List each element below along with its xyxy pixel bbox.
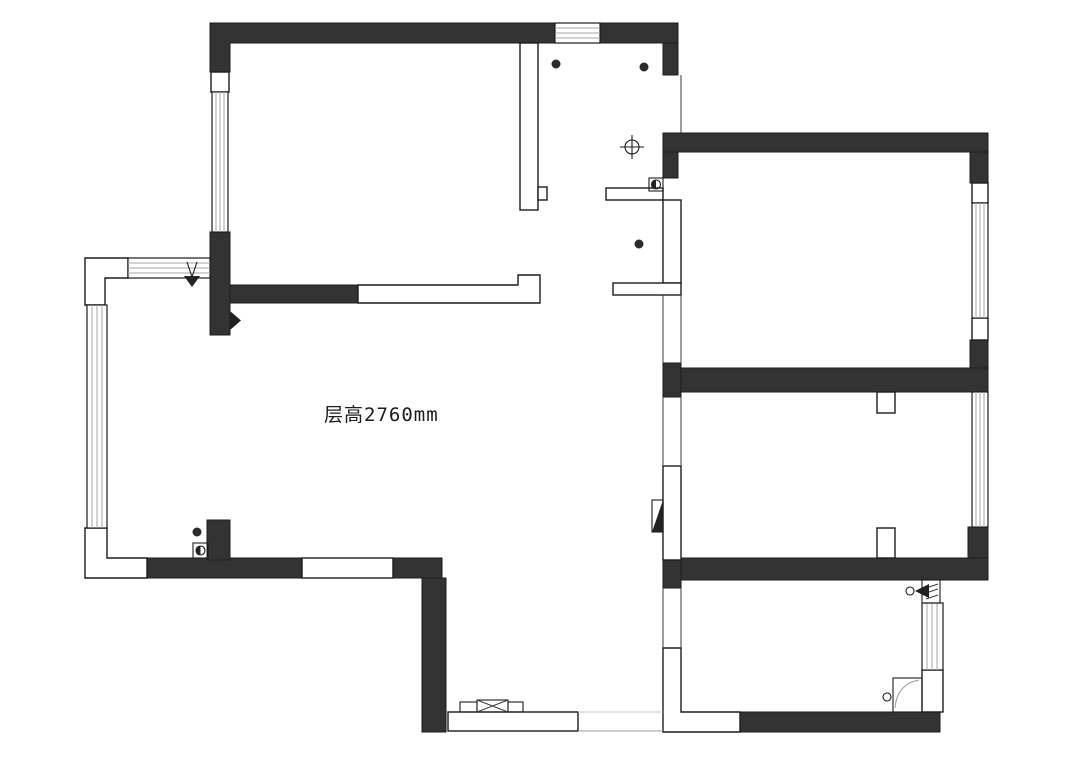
wall-topleft-room-south xyxy=(230,285,358,303)
window-north xyxy=(555,23,600,43)
wall-hall-right-upper xyxy=(663,43,678,75)
window-entry-north xyxy=(128,258,210,278)
opening-topleft-room-south xyxy=(358,275,540,303)
wall-midright-tee-block xyxy=(663,363,681,397)
pilaster-west-bottom xyxy=(85,528,147,578)
wall-topleft-room-west-lower xyxy=(210,232,230,335)
point-marker-dot xyxy=(193,528,202,537)
window-living-west xyxy=(87,305,107,528)
window-endcap-east-upper xyxy=(972,183,988,203)
wall-living-south-corner xyxy=(393,558,442,578)
wall-north xyxy=(210,23,678,72)
floor-plan-svg: 层高2760mm xyxy=(0,0,1080,763)
niche-right-bar xyxy=(663,200,681,283)
window-midright-east xyxy=(972,392,988,527)
niche-bottom-bar xyxy=(613,283,681,295)
cabinet-swing-icon xyxy=(883,678,922,712)
wall-topright-room-north xyxy=(663,133,988,152)
point-marker-dot xyxy=(640,63,649,72)
wall-living-south-stub xyxy=(207,520,230,560)
pilaster-west-top xyxy=(85,258,128,305)
wall-fixture-arrow-icon xyxy=(906,580,940,603)
jamb-midright-north xyxy=(877,392,895,413)
door-swing-triangle-left-icon xyxy=(652,500,663,532)
wall-topright-room-east-upper xyxy=(970,152,988,183)
light-fixture-crosshair-icon xyxy=(620,135,644,159)
window-bottomright-east xyxy=(922,603,943,670)
window-endcap-east-mid xyxy=(972,318,988,340)
wall-living-south-black xyxy=(145,558,302,578)
jamb-midright-south xyxy=(877,528,895,558)
window-topleft-west xyxy=(212,92,228,232)
point-marker-dot xyxy=(552,60,561,69)
opening-living-south xyxy=(302,558,393,578)
floor-plan-canvas: 层高2760mm xyxy=(0,0,1080,763)
window-endcap-topleft xyxy=(211,72,229,92)
junction-box-half-circle-icon xyxy=(193,543,208,558)
wall-midright-room-north xyxy=(663,368,988,392)
flue-vent-box-icon xyxy=(460,700,523,712)
threshold-bottom-center xyxy=(448,712,578,731)
floor-height-label: 层高2760mm xyxy=(324,404,439,426)
wall-bottomright-west-block xyxy=(663,558,681,588)
door-leaf-midright xyxy=(663,466,681,560)
walls xyxy=(145,23,988,732)
window-endcap-bottomright xyxy=(922,670,943,712)
pier-bottom-center xyxy=(663,648,740,732)
wall-living-east-vertical xyxy=(422,578,446,732)
niche-top-bar xyxy=(606,188,663,200)
wall-midright-room-south xyxy=(663,558,988,580)
point-marker-dot xyxy=(635,240,644,249)
partition-kitchen-foot xyxy=(538,187,547,200)
wall-bottomright-room-south xyxy=(740,712,940,732)
door-swing-triangle-right-icon xyxy=(230,311,241,330)
partition-kitchen xyxy=(520,43,538,210)
window-topright-east xyxy=(972,203,988,318)
